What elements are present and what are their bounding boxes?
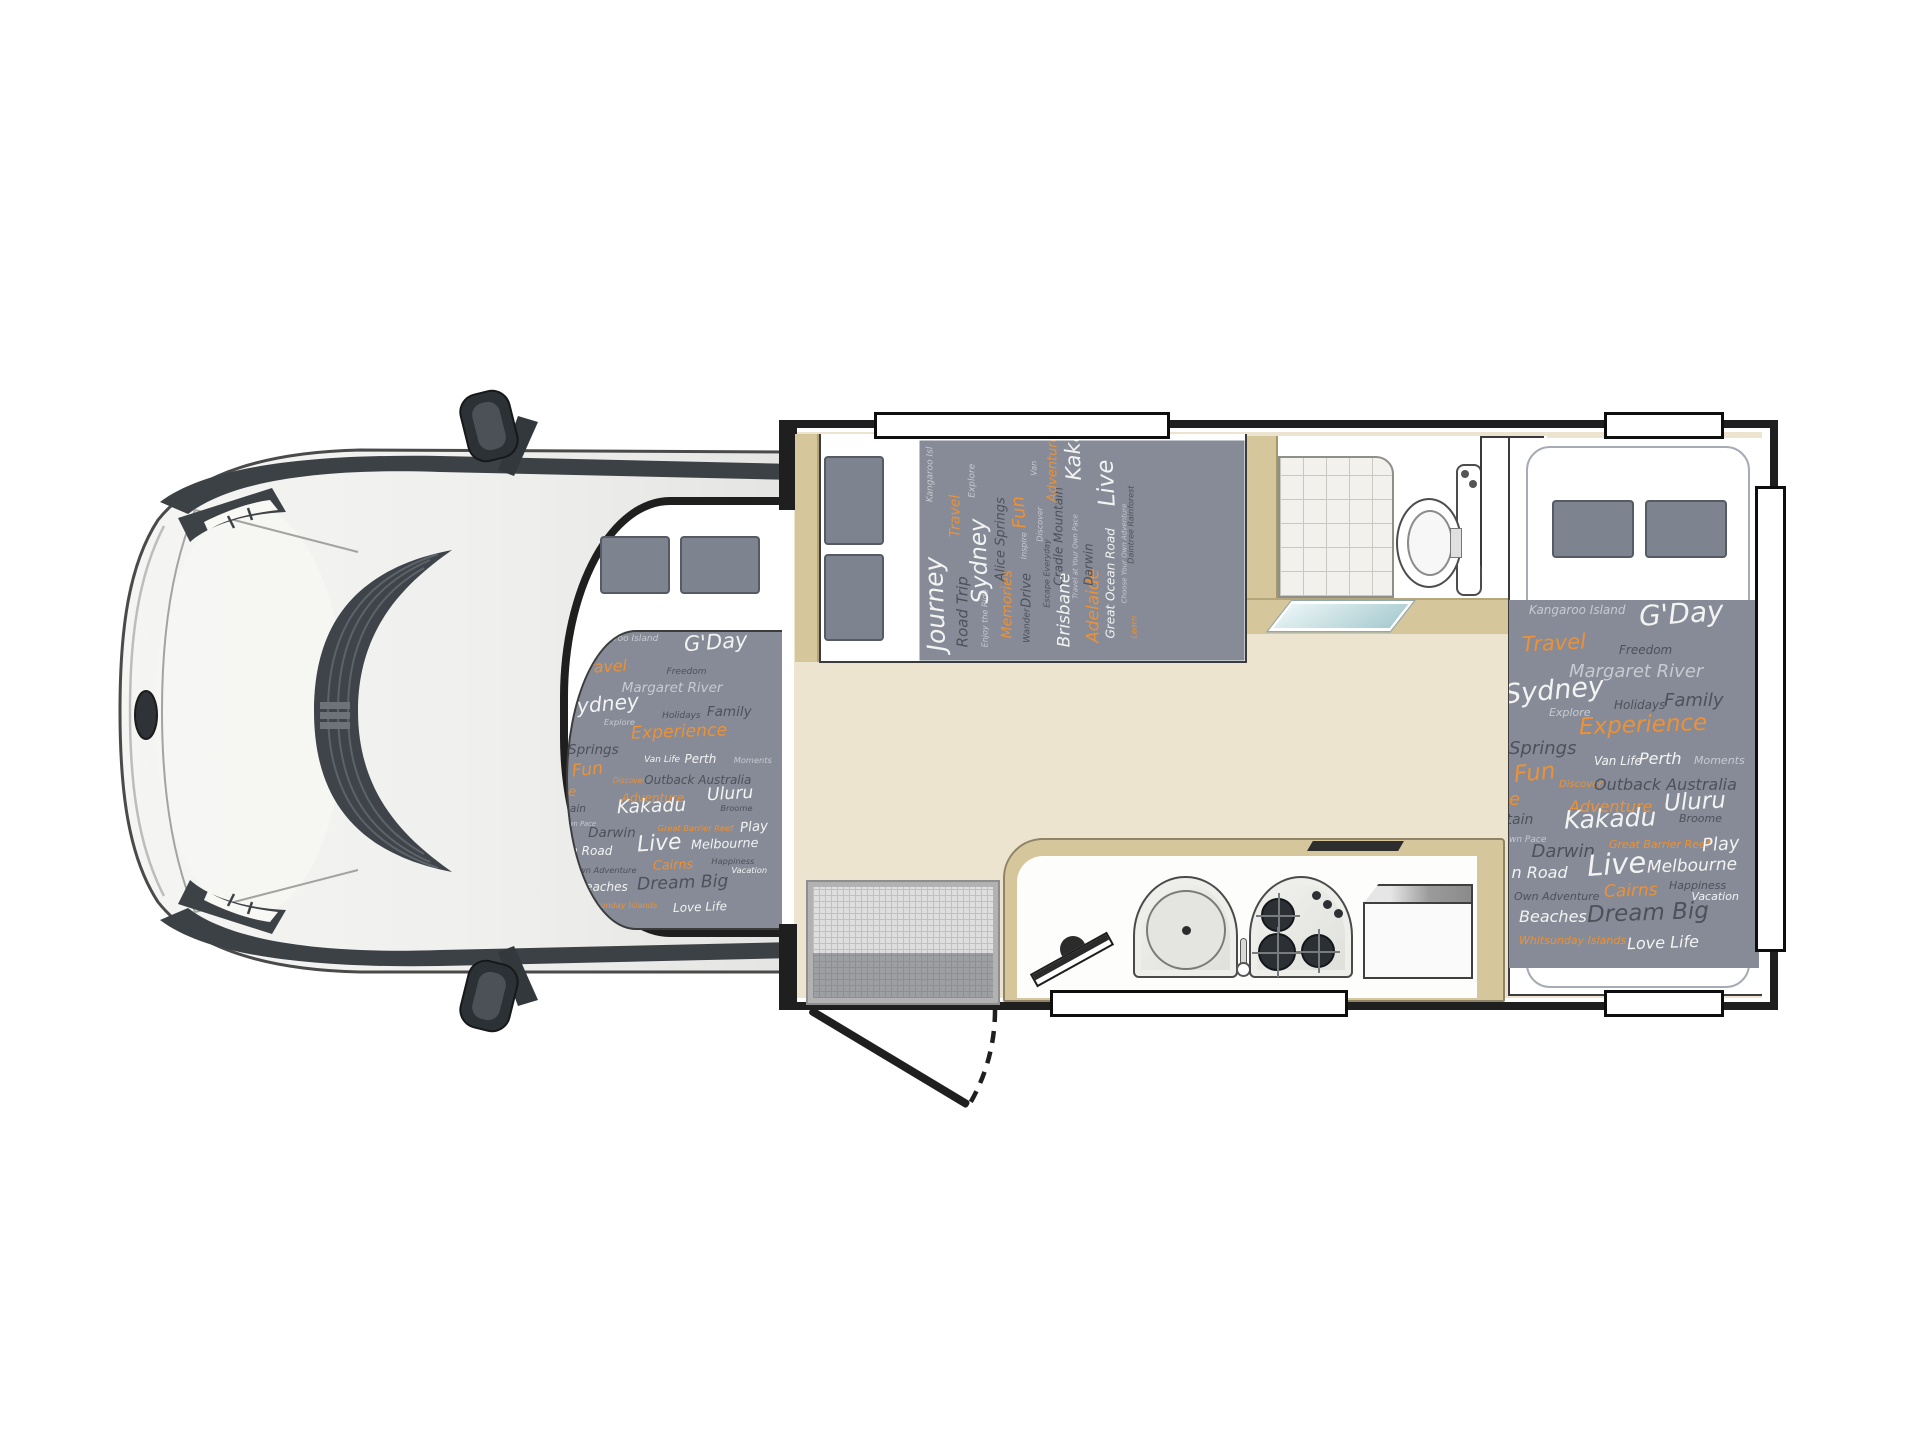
- fabric-word: Explore: [968, 464, 977, 498]
- appliance-box: [1363, 902, 1473, 979]
- wall-stub-bottom-left: [779, 924, 797, 1010]
- fabric-word: Kakadu: [617, 797, 687, 818]
- fabric-word: Inspire: [1020, 532, 1028, 559]
- entry-step: [808, 882, 998, 1003]
- fabric-word: n Road: [1512, 865, 1568, 881]
- luton-bed-fabric: Kangaroo IslandG'DayTravelFreedomMargare…: [566, 630, 792, 930]
- fabric-word: G'Day: [684, 630, 749, 655]
- rear-bed-fabric: Kangaroo IslandG'DayTravelFreedomMargare…: [1509, 600, 1759, 968]
- fabric-word: Beaches: [1519, 909, 1587, 925]
- fabric-word: Springs: [568, 744, 619, 758]
- fabric-word: Travel: [1521, 631, 1586, 655]
- fabric-word: Kakadu: [1564, 804, 1657, 832]
- toilet-seat: [1407, 510, 1453, 576]
- counter-rail: [1307, 841, 1404, 851]
- fabric-word: Fun: [1513, 760, 1557, 787]
- fabric-word: Family: [1664, 692, 1724, 710]
- fabric-word: Daintree Rainforest: [1128, 486, 1136, 564]
- fabric-word: Darwin: [588, 827, 636, 841]
- front-bed-pillow-bottom: [824, 554, 884, 641]
- fabric-word: Cairns: [1604, 882, 1658, 901]
- fabric-word: Alice Springs: [994, 497, 1007, 581]
- fabric-word: tain: [1509, 813, 1533, 827]
- fabric-word: Wander: [1024, 608, 1033, 643]
- fabric-word: Beaches: [577, 881, 628, 893]
- fabric-word: Live: [1094, 459, 1119, 507]
- wall-behind-cab: [795, 434, 819, 662]
- fabric-word: Own Adventure: [1514, 891, 1599, 902]
- fabric-word: Cairns: [653, 859, 694, 873]
- fabric-word: Perth: [1639, 751, 1681, 767]
- fabric-word: Kakadu: [1061, 441, 1085, 481]
- floorplan-stage: Kangaroo IslandG'DayTravelFreedomMargare…: [0, 0, 1920, 1440]
- fabric-word: Van: [1030, 461, 1038, 476]
- fabric-word: Live: [637, 832, 683, 857]
- fabric-word: Learn: [1131, 616, 1139, 639]
- fabric-word: Whitsunday Islands: [577, 901, 657, 909]
- fabric-word: Play: [740, 820, 769, 835]
- fabric-word: Vacation: [732, 866, 768, 874]
- fabric-word: Perth: [684, 753, 716, 765]
- shower-tray: [1268, 601, 1413, 631]
- fabric-word: Dream Big: [1586, 900, 1709, 927]
- fabric-word: Experience: [630, 722, 727, 743]
- fabric-word: Whitsunday Islands: [1519, 935, 1626, 946]
- fabric-word: Moments: [1694, 755, 1745, 766]
- front-bed-pillow-top: [824, 456, 884, 545]
- fabric-word: tain: [566, 804, 586, 815]
- fabric-word: Holidays: [1614, 699, 1665, 711]
- fabric-word: Play: [1701, 834, 1740, 855]
- fabric-word: Dream Big: [637, 873, 729, 893]
- fabric-word: Broome: [720, 804, 752, 812]
- fabric-word: e: [1509, 791, 1520, 809]
- fabric-word: Springs: [1509, 740, 1576, 758]
- fabric-word: Uluru: [706, 785, 753, 805]
- fabric-word: e: [568, 786, 576, 800]
- fabric-word: G'Day: [1638, 600, 1724, 631]
- fabric-word: Sydney: [1509, 673, 1605, 709]
- stove-knob-1: [1312, 891, 1321, 900]
- fabric-word: Discover: [1037, 507, 1045, 542]
- fabric-word: Travel: [579, 657, 628, 675]
- window-right-wall: [1755, 486, 1786, 952]
- fabric-word: Love Life: [673, 900, 727, 914]
- luton-pillow-left: [600, 536, 670, 594]
- fabric-word: Darwin: [1082, 543, 1094, 585]
- stove-knob-3: [1334, 909, 1343, 918]
- flush-button-2: [1469, 480, 1477, 488]
- fabric-word: Broome: [1679, 813, 1722, 824]
- fabric-word: Van Life: [644, 756, 680, 765]
- stove-burner-2: [1258, 933, 1296, 971]
- luton-pillow-right: [680, 536, 760, 594]
- fabric-word: Freedom: [1619, 644, 1672, 656]
- fabric-word: Great Ocean Road: [1105, 528, 1117, 638]
- fabric-word: Love Life: [1626, 934, 1698, 953]
- fabric-word: Escape Everyday: [1043, 539, 1051, 608]
- fabric-word: Kangaroo Island: [1529, 604, 1626, 616]
- fabric-word: Experience: [1579, 712, 1708, 739]
- fabric-word: Melbourne: [1646, 856, 1737, 876]
- flush-button: [1461, 470, 1469, 478]
- fabric-word: Sydney: [967, 518, 993, 604]
- toilet-hinge: [1450, 528, 1462, 558]
- fabric-word: Fun: [572, 761, 605, 781]
- fabric-word: Journey: [921, 556, 949, 652]
- front-bed-fabric: JourneyKangaroo IslRoad TripTravelEnjoy …: [920, 441, 1245, 661]
- window-bottom-rear: [1604, 990, 1724, 1017]
- window-top-rear: [1604, 412, 1724, 439]
- stove-knob-2: [1323, 900, 1332, 909]
- sink-drain: [1182, 926, 1191, 935]
- defroster-grid: [320, 702, 350, 729]
- door-swing-arc: [790, 1002, 1020, 1132]
- fabric-word: Live: [1586, 848, 1647, 881]
- fabric-word: Adventure: [1046, 441, 1059, 503]
- fabric-word: Freedom: [667, 668, 707, 677]
- fabric-word: Sydney: [566, 691, 639, 718]
- window-top-front: [874, 412, 1170, 439]
- fabric-word: Moments: [734, 756, 772, 764]
- fabric-word: Travel at Your Own Pace: [1072, 514, 1079, 599]
- fabric-word: Discover: [613, 777, 646, 785]
- grille-badge: [135, 691, 157, 739]
- fabric-word: Travel: [949, 495, 963, 538]
- fabric-word: Holidays: [662, 712, 701, 721]
- shower-tiles: [1278, 456, 1394, 598]
- fabric-word: Fun: [1009, 495, 1029, 529]
- entry-step-band: [813, 953, 993, 998]
- appliance-top: [1363, 884, 1473, 904]
- stove-burner-3: [1301, 934, 1335, 968]
- rear-bed-pillow-left: [1552, 500, 1634, 558]
- fabric-word: Kangaroo Isl: [926, 447, 935, 502]
- fabric-word: Drive: [1020, 573, 1033, 608]
- fabric-word: Own Adventure: [572, 866, 636, 874]
- rear-bed-pillow-right: [1645, 500, 1727, 558]
- fabric-word: Family: [707, 706, 752, 720]
- fabric-word: Kangaroo Island: [586, 635, 658, 644]
- fabric-word: n Road: [570, 845, 612, 857]
- window-bottom-kitchen: [1050, 990, 1348, 1017]
- fabric-word: Happiness: [711, 857, 754, 865]
- fabric-word: Melbourne: [691, 838, 759, 853]
- fabric-word: Van Life: [1594, 755, 1642, 767]
